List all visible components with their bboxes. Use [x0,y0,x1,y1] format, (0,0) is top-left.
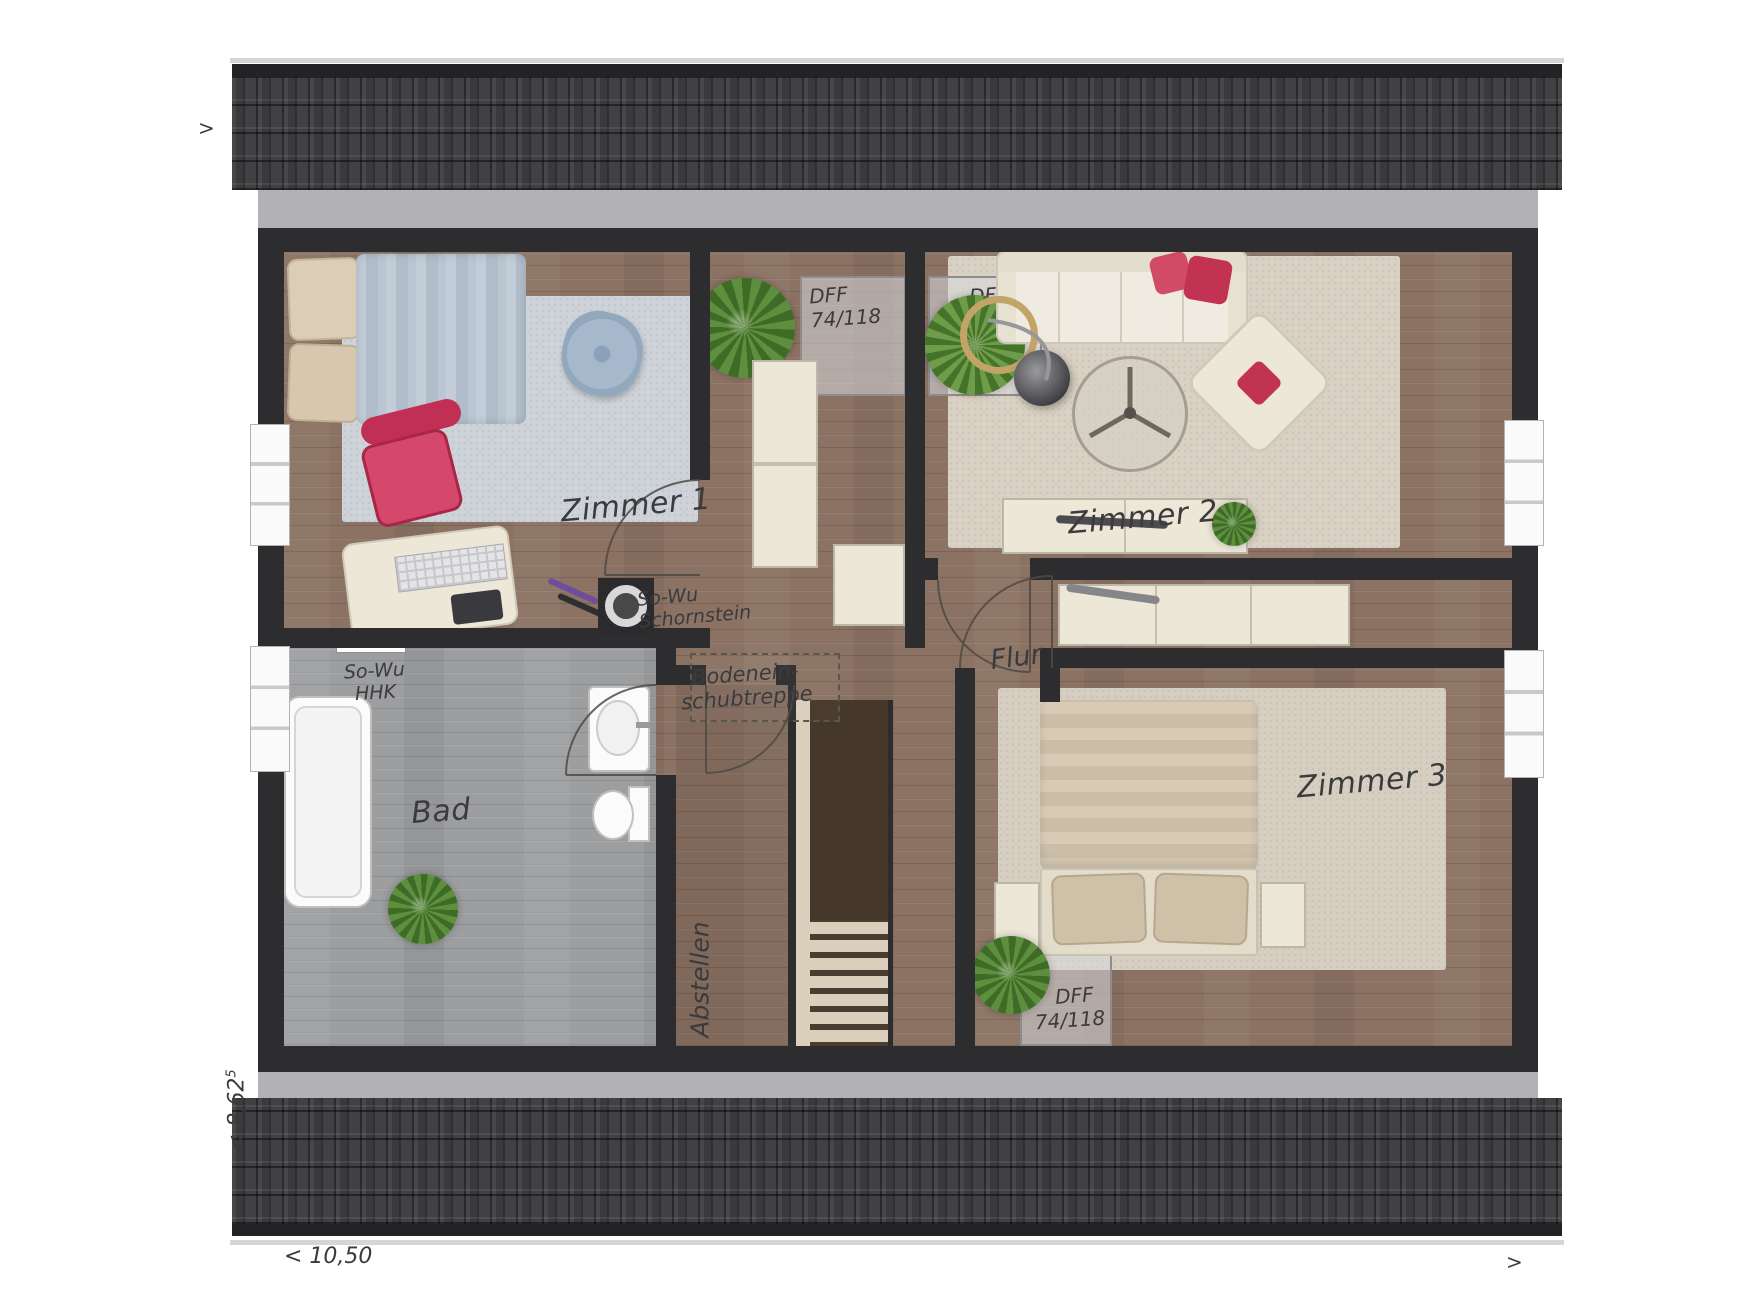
bed-zimmer3-duvet [1040,700,1258,870]
wall-hall-zimmer2 [905,252,925,648]
stair-tread [810,1030,888,1042]
stair-tread [810,994,888,1006]
bed-zimmer1-pillow-bottom [287,343,362,423]
wall-flur-zimmer3 [955,668,975,1046]
room-label-bad: Bad [395,791,487,832]
wall-zimmer3-top [1040,648,1512,668]
plant-zimmer3 [972,936,1050,1014]
stair-tread [810,1012,888,1024]
stair-railing [888,700,893,1046]
stairwell-void [810,700,888,920]
bed-zimmer3-pillow-left [1051,872,1147,945]
bed-zimmer1-duvet [356,254,526,424]
stair-tread [810,958,888,970]
roof-tiles-bottom [232,1098,1562,1224]
window-right-zimmer3 [1504,650,1544,778]
toilet-bowl [592,790,634,840]
radiator-label: So-Wu HHK [329,658,421,707]
stair-tread [810,940,888,952]
window-right-zimmer2 [1504,420,1544,546]
attic-floor-strip-bottom [258,1072,1538,1100]
bed-zimmer1-pillow-top [287,257,362,341]
wall-abstellen-stair [788,685,796,1046]
bed-zimmer3-pillow-right [1153,872,1249,945]
wall-zimmer2-flur-b [1030,558,1512,580]
wall-bad-flur-b [656,775,676,1046]
coffee-table-glass [1072,356,1188,472]
skylight-1-label: DFF74/118 [808,280,882,333]
plant-bathroom [388,874,458,944]
room-label-abstellen: Abstellen [686,910,715,1050]
window-left-zimmer1 [250,424,290,546]
hall-cabinet [833,544,905,626]
dimension-bottom: < 10,50 [284,1244,372,1269]
staircase [810,920,888,1046]
wall-zimmer3-jamb [1040,668,1060,702]
dimension-arrow-bottom-right: > [1506,1250,1523,1274]
wall-zimmer1-hall [690,252,710,480]
stair-tread [810,922,888,934]
roof-ridge-bar-top [232,64,1562,77]
dimension-left: < 8,625 [224,1031,249,1191]
nightstand-right [1260,882,1306,948]
roof-tiles-top [232,77,1562,190]
wall-outer-bottom [258,1046,1538,1072]
bathtub-basin [294,706,362,898]
dimension-arrow-top-left: > [198,116,215,140]
floor-lamp [1014,350,1070,406]
stair-tread [810,976,888,988]
wall-outer-top [258,228,1538,252]
sink-basin [596,700,640,756]
sink-tap [636,722,650,728]
stair-stringer [796,700,810,1046]
hall-wardrobe-tall [752,360,818,568]
wall-zimmer2-flur-a [925,558,938,580]
roof-gutter-line-bottom [230,1240,1564,1245]
window-left-bad [250,646,290,772]
roof-ridge-bar-bottom [232,1224,1562,1236]
attic-floor-strip-top [258,190,1538,228]
floor-plan: DFF74/118 DFF74/118 DFF74/118 [0,0,1754,1316]
tablet [450,589,503,625]
sofa-pillow-2 [1183,255,1234,306]
roof-gutter-line-top [230,58,1564,63]
